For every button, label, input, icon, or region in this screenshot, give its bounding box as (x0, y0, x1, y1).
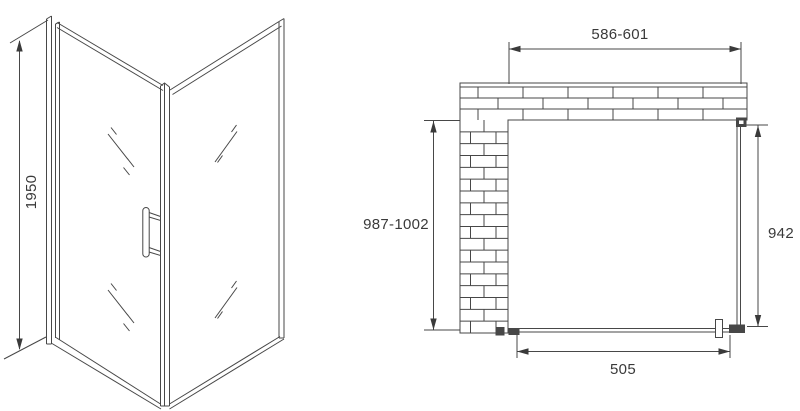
door-frame-post (56, 22, 60, 340)
width-dim-label: 586-601 (570, 27, 670, 43)
bottom-rails (52, 337, 284, 410)
left-wall-profile (47, 16, 52, 344)
door-top-rail (57, 23, 163, 91)
door-dimension (517, 335, 730, 358)
height-dim-label: 1950 (24, 175, 40, 210)
brick-courses (460, 87, 747, 333)
glass-shine-icon (108, 125, 237, 331)
corner-post (161, 83, 170, 406)
shower-enclosure-technical-drawing: 1950 586-601 987-1002 942 505 (0, 0, 800, 411)
door-panel (511, 329, 736, 333)
door-handle-icon (143, 208, 161, 258)
wall-bracket-detail (736, 118, 747, 128)
right-frame-post (279, 19, 284, 339)
side-glass-panel (737, 127, 741, 326)
diagram-linework (0, 0, 800, 411)
width-dimension (509, 42, 741, 84)
handle-top-detail (716, 320, 723, 338)
side-view (4, 16, 284, 409)
corner-connector-detail (729, 325, 745, 334)
side-panel-top-rail (170, 22, 282, 95)
door-dim-label: 505 (573, 362, 673, 378)
top-view (424, 42, 768, 358)
panel-dim-label: 942 (761, 226, 800, 242)
brick-wall (460, 83, 747, 333)
depth-dim-label: 987-1002 (346, 217, 446, 233)
